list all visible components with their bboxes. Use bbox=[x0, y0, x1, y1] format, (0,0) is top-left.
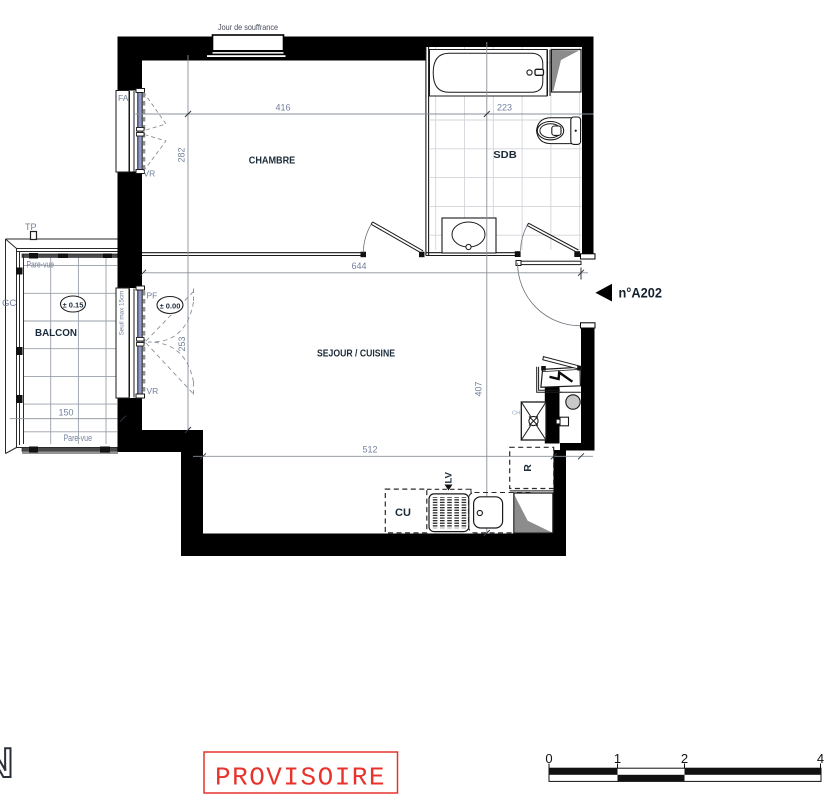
svg-text:n°A202: n°A202 bbox=[619, 286, 663, 301]
svg-text:512: 512 bbox=[362, 445, 377, 455]
svg-text:407: 407 bbox=[474, 381, 484, 396]
svg-text:CHAMBRE: CHAMBRE bbox=[249, 155, 296, 167]
svg-text:223: 223 bbox=[497, 103, 512, 113]
svg-text:N: N bbox=[0, 739, 13, 786]
svg-text:CU: CU bbox=[395, 507, 411, 519]
svg-text:PROVISOIRE: PROVISOIRE bbox=[215, 763, 386, 793]
svg-text:R: R bbox=[522, 464, 534, 472]
svg-text:SDB: SDB bbox=[493, 149, 517, 161]
svg-text:GC: GC bbox=[2, 298, 16, 309]
svg-text:Pare-vue: Pare-vue bbox=[64, 433, 93, 443]
svg-text:150: 150 bbox=[58, 408, 73, 418]
svg-text:CH: CH bbox=[512, 411, 520, 417]
svg-text:PF: PF bbox=[147, 291, 158, 301]
svg-text:416: 416 bbox=[275, 103, 290, 113]
svg-text:Seuil max 15cm: Seuil max 15cm bbox=[119, 291, 126, 336]
svg-text:± 0.00: ± 0.00 bbox=[160, 302, 181, 311]
svg-text:VR: VR bbox=[144, 169, 156, 179]
svg-text:253: 253 bbox=[177, 336, 187, 351]
svg-text:SEJOUR / CUISINE: SEJOUR / CUISINE bbox=[317, 348, 395, 360]
svg-text:Pare-vue: Pare-vue bbox=[27, 260, 55, 270]
svg-text:Jour de souffrance: Jour de souffrance bbox=[218, 22, 278, 32]
svg-text:BALCON: BALCON bbox=[35, 327, 77, 339]
svg-text:282: 282 bbox=[177, 147, 187, 162]
svg-text:LV: LV bbox=[444, 471, 455, 483]
svg-text:TP: TP bbox=[25, 222, 37, 232]
svg-text:± 0.15: ± 0.15 bbox=[63, 301, 84, 310]
svg-text:FA: FA bbox=[118, 93, 129, 103]
svg-text:VR: VR bbox=[147, 386, 159, 396]
svg-text:644: 644 bbox=[351, 261, 366, 271]
